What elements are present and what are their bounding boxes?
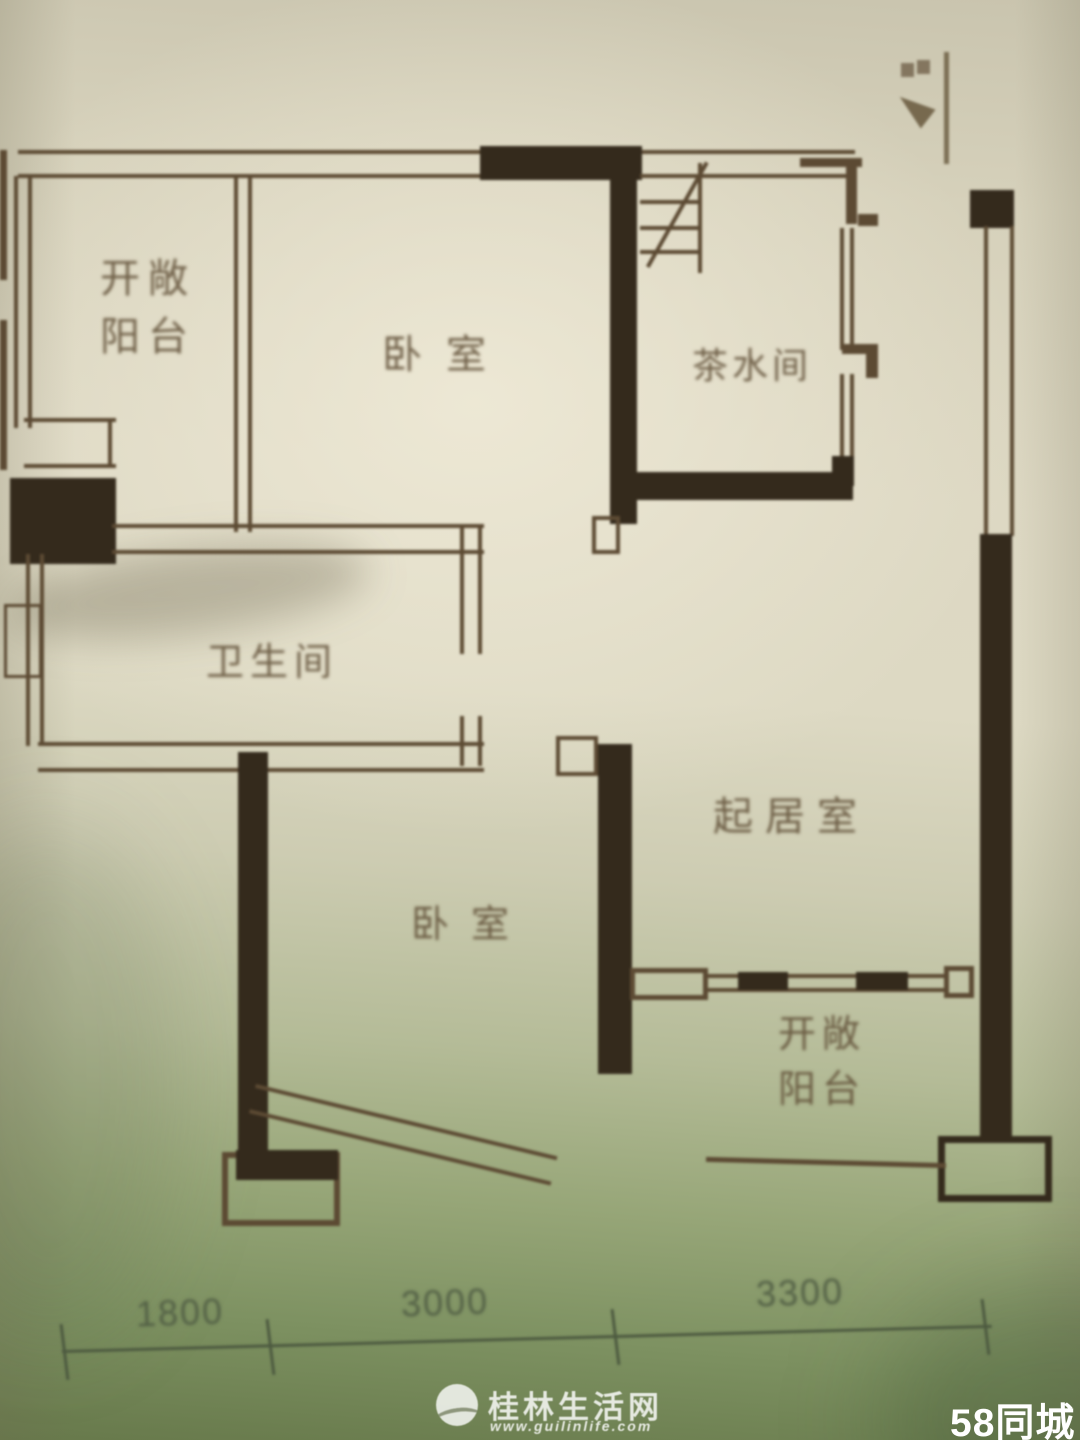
room-label-balcony-top: 开敞 阳台 <box>88 250 208 366</box>
dimension-value: 3000 <box>384 1280 505 1326</box>
room-label-tea-room: 茶水间 <box>682 340 822 392</box>
window-line <box>108 418 112 468</box>
wall-segment <box>832 456 854 486</box>
window-line <box>24 418 116 422</box>
stairs <box>640 200 700 204</box>
watermark: 桂林生活网 www.guilinlife.com <box>436 1380 696 1438</box>
railing-post <box>738 972 788 990</box>
room-label-bathroom: 卫生间 <box>192 636 352 691</box>
wall-segment <box>10 478 116 564</box>
site-url: www.guilinlife.com <box>490 1418 652 1434</box>
floorplan-drawing: 开敞 阳台 卧室 茶水间 卫生间 卧室 起居室 开敞 阳台 1800 3000 … <box>0 0 1080 1440</box>
entry-mark <box>901 63 914 77</box>
dimension-value: 3300 <box>739 1270 860 1316</box>
stairs <box>640 250 700 254</box>
wall-segment <box>858 214 878 226</box>
room-label-living-room: 起居室 <box>686 788 896 846</box>
balcony-edge-line <box>706 1157 946 1168</box>
wall-segment <box>846 158 857 224</box>
wall-segment <box>4 604 42 678</box>
floorplan-photo: 开敞 阳台 卧室 茶水间 卫生间 卧室 起居室 开敞 阳台 1800 3000 … <box>0 0 1080 1440</box>
entry-line <box>944 52 949 164</box>
wall-segment <box>610 176 637 524</box>
wall-segment <box>0 150 7 280</box>
wall-segment <box>0 320 7 470</box>
wall-segment <box>234 174 252 532</box>
room-label-bedroom-bottom: 卧室 <box>396 898 546 953</box>
room-label-balcony-bottom: 开敞 阳台 <box>770 1008 874 1118</box>
wall-segment <box>14 176 32 428</box>
brand-logo: 58同城 <box>950 1392 1075 1440</box>
stairs <box>640 174 700 178</box>
entry-arrow-icon <box>892 87 935 128</box>
wall-segment <box>840 374 854 460</box>
railing-post <box>856 972 908 990</box>
door-jamb <box>556 736 598 776</box>
site-logo-icon <box>436 1384 478 1426</box>
wall-segment <box>980 534 1012 1138</box>
wall-segment <box>480 146 642 180</box>
wall-segment <box>637 472 853 500</box>
wall-segment <box>236 1150 338 1180</box>
wall-segment <box>112 524 484 554</box>
door-jamb <box>630 968 708 1000</box>
pier <box>938 1136 1052 1202</box>
wall-segment <box>18 150 855 178</box>
room-label-bedroom-top: 卧室 <box>366 326 526 384</box>
door-jamb <box>592 516 620 554</box>
window-line <box>24 464 116 468</box>
door-jamb <box>944 966 974 998</box>
wall-segment <box>866 344 878 378</box>
wall-segment <box>840 228 854 350</box>
wall-segment <box>970 190 1014 228</box>
dimension-value: 1800 <box>119 1290 240 1336</box>
entry-mark <box>917 60 930 74</box>
wall-segment <box>598 744 632 1074</box>
wall-segment <box>984 226 1014 536</box>
wall-segment <box>460 528 482 654</box>
